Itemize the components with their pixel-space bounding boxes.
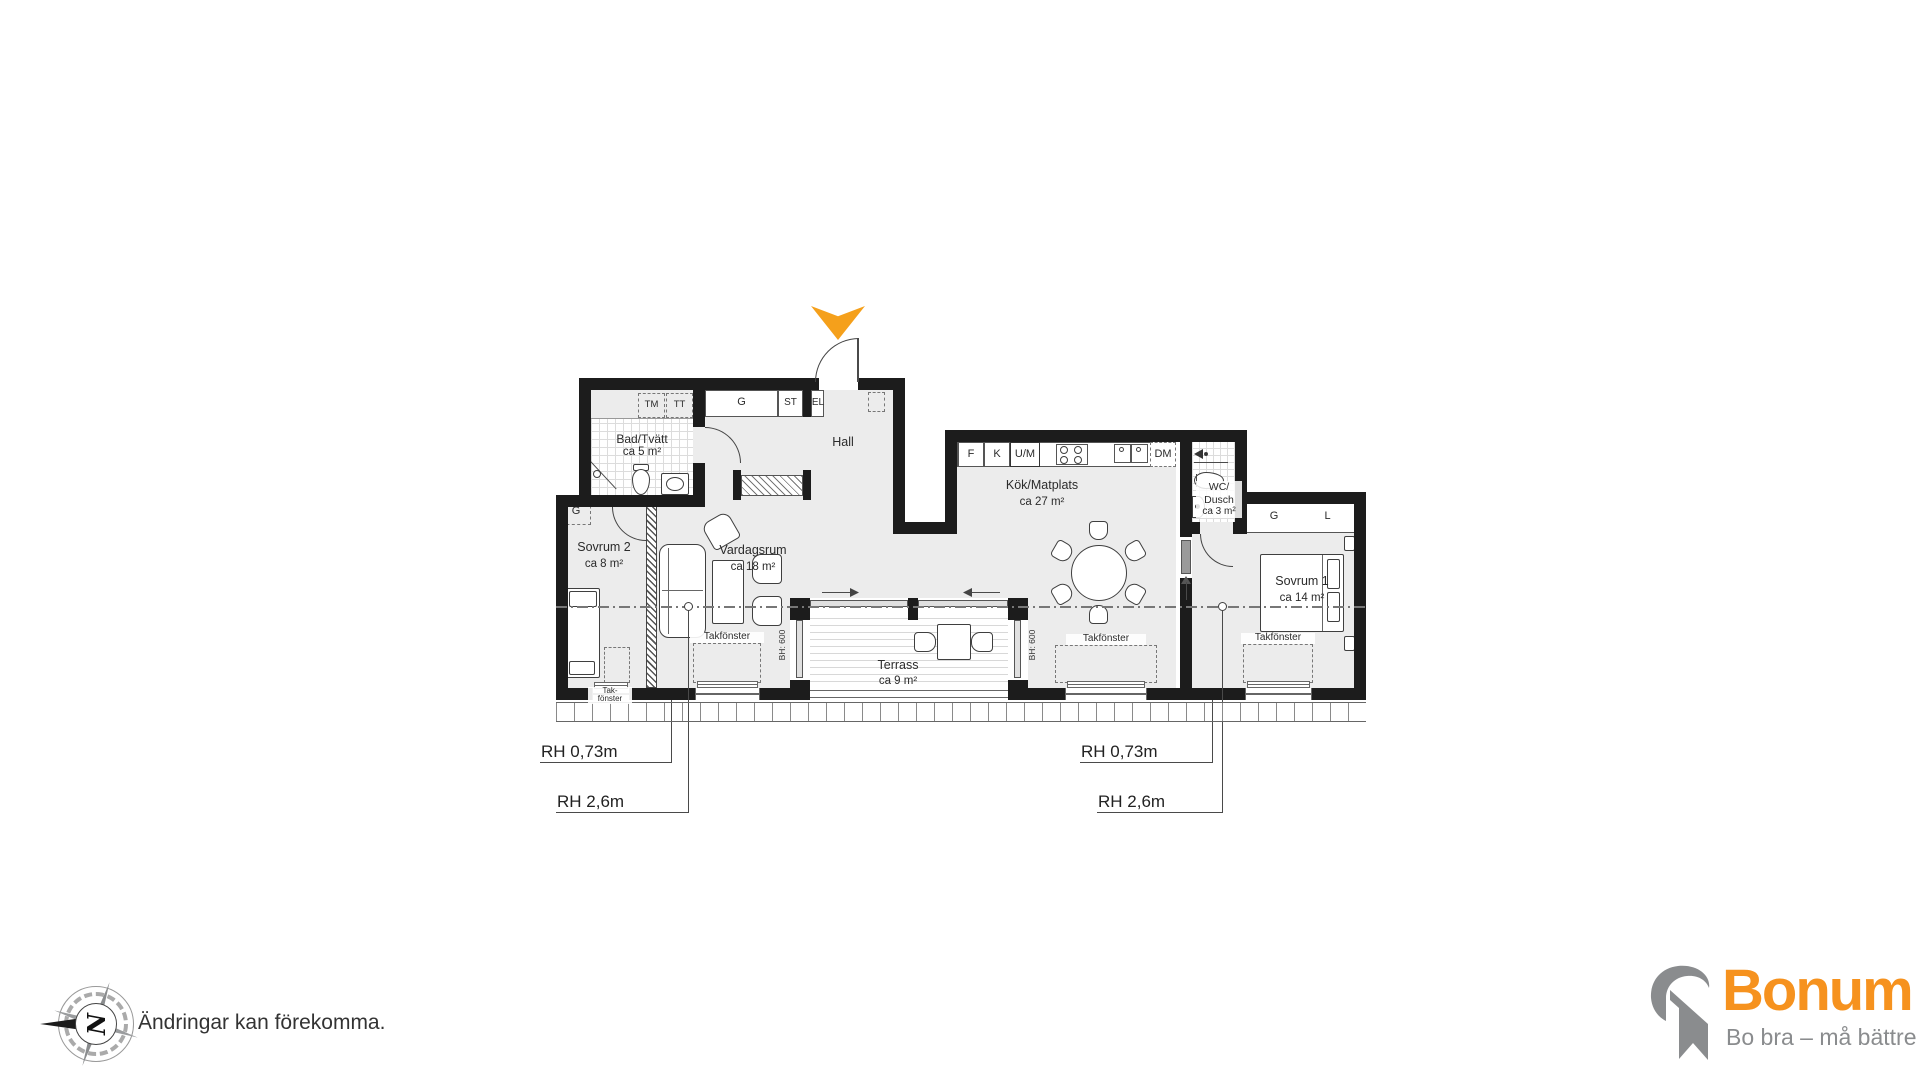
sill-vardagsrum	[697, 681, 758, 688]
sill-kok	[1067, 681, 1145, 688]
room-label-sovrum1: Sovrum 1 ca 14 m²	[1262, 574, 1342, 606]
wall-wc-bottom-right	[1233, 522, 1247, 534]
wall-bottom-1	[556, 688, 592, 700]
hall-dashed-unit	[868, 392, 885, 412]
skylight-kok	[1055, 645, 1157, 683]
oven-micro-label: U/M	[1010, 448, 1040, 461]
room-label-vardagsrum: Vardagsrum ca 18 m²	[712, 543, 794, 575]
fridge-label: F	[958, 448, 984, 461]
wall-left-upper	[579, 378, 591, 502]
skylight-vardagsrum	[693, 643, 761, 683]
wall-bottom-6	[1312, 688, 1366, 700]
sill-sovrum1	[1247, 681, 1310, 688]
terrass-pillar-bottom-left	[790, 680, 810, 700]
wall-top-left	[579, 378, 819, 390]
bed-sovrum2-blanket	[569, 661, 595, 675]
wall-kok-left	[945, 430, 957, 534]
room-area-kok: ca 27 m²	[996, 496, 1088, 510]
sofa	[659, 544, 706, 638]
closet-hall-st-label: ST	[778, 397, 803, 409]
dryer-tt-label: TT	[666, 399, 693, 410]
room-name-wc-line1: WC/	[1196, 481, 1242, 494]
leader-rh-low-right-h	[1080, 762, 1213, 763]
washer-tm-label: TM	[638, 399, 665, 410]
low-window-sovrum1	[1245, 688, 1312, 700]
burner-2	[1074, 446, 1082, 454]
room-name-terrass: Terrass	[866, 658, 930, 673]
section-node-right	[1218, 602, 1227, 611]
sink-tap-right	[1136, 447, 1141, 452]
room-area-terrass: ca 9 m²	[866, 675, 930, 689]
room-name-kok: Kök/Matplats	[996, 478, 1088, 493]
room-area-bad-tvatt: ca 5 m²	[604, 446, 680, 460]
dining-table	[1071, 545, 1127, 601]
dining-chair-n	[1089, 521, 1108, 540]
wardrobe-stub-left	[733, 470, 741, 500]
room-label-sovrum2: Sovrum 2 ca 8 m²	[566, 540, 642, 572]
partition-sovrum2-vardagsrum	[646, 495, 657, 688]
roof-edge-band	[556, 702, 1366, 722]
terrass-pillar-top-right	[1008, 598, 1028, 620]
room-label-kok: Kök/Matplats ca 27 m²	[996, 478, 1088, 510]
room-area-wc: ca 3 m²	[1196, 506, 1242, 518]
leader-rh-low-left-h	[540, 762, 672, 763]
bed-sovrum2-pillow	[569, 591, 597, 607]
section-line	[556, 606, 1366, 608]
terrass-mullion	[908, 598, 918, 620]
room-name-vardagsrum: Vardagsrum	[712, 543, 794, 558]
rh-high-left-label: RH 2,6m	[557, 792, 624, 812]
terrass-rail	[810, 690, 1008, 698]
compass: N	[48, 976, 144, 1072]
wall-wc-bottom-left	[1180, 522, 1200, 534]
room-area-sovrum2: ca 8 m²	[566, 558, 642, 572]
room-label-bad-tvatt: Bad/Tvätt ca 5 m²	[604, 432, 680, 460]
terrass-pillar-bottom-right	[1008, 680, 1028, 700]
wall-closet-stub	[803, 388, 811, 417]
sink-tap-left	[1119, 447, 1124, 452]
window-height-label-left: BH: 600	[777, 623, 787, 667]
room-label-wc-dusch: WC/ Dusch ca 3 m²	[1196, 481, 1242, 518]
room-area-sovrum1: ca 14 m²	[1262, 592, 1342, 606]
wall-right	[1354, 492, 1366, 700]
leader-rh-high-right-h	[1097, 812, 1223, 813]
window-height-label-right: BH: 600	[1027, 623, 1037, 667]
low-window-kok	[1065, 688, 1147, 700]
terrass-chair-right	[971, 632, 993, 652]
freezer-label: K	[984, 448, 1010, 461]
skylight-label-sovrum2-line2: fönster	[588, 695, 632, 703]
room-name-bad-tvatt: Bad/Tvätt	[604, 432, 680, 446]
section-node-left	[684, 602, 693, 611]
terrass-glazing-side-left	[796, 620, 803, 678]
skylight-label-vardagsrum: Takfönster	[690, 632, 764, 643]
wall-bottom-3	[760, 688, 790, 700]
washbasin-bad-bowl	[666, 477, 684, 491]
closet-hall-g-label: G	[705, 396, 778, 409]
room-label-hall: Hall	[818, 435, 868, 450]
entrance-arrow-icon	[811, 306, 865, 340]
wall-badtvatt-bottom	[591, 495, 705, 507]
dishwasher-label: DM	[1150, 448, 1176, 461]
wall-left-lower	[556, 495, 568, 700]
room-name-wc-line2: Dusch	[1196, 494, 1242, 507]
wall-hall-right	[893, 378, 905, 534]
wall-bottom-2	[630, 688, 695, 700]
closet-sovrum1-l-label: L	[1301, 510, 1354, 523]
skylight-label-sovrum2: Tak- fönster	[588, 687, 632, 704]
terrass-glazing-side-right	[1014, 620, 1021, 678]
burner-1	[1060, 446, 1068, 454]
entrance-door-leaf	[857, 338, 859, 382]
burner-3	[1060, 456, 1068, 464]
disclaimer-text: Ändringar kan förekomma.	[138, 1010, 498, 1035]
wall-badtvatt-right-upper	[693, 390, 705, 427]
burner-4	[1074, 456, 1082, 464]
sovrum1-entry-door-slab	[1181, 540, 1191, 574]
shower-symbol-dot	[1204, 452, 1208, 456]
skylight-sovrum1	[1243, 644, 1313, 683]
terrass-chair-left	[914, 632, 936, 652]
terrass-table	[937, 624, 971, 660]
brand-name: Bonum	[1722, 962, 1912, 1020]
wardrobe-stub-right	[803, 470, 811, 500]
leader-rh-high-left-h	[556, 812, 689, 813]
room-label-terrass: Terrass ca 9 m²	[866, 658, 930, 689]
dining-chair-s	[1089, 605, 1108, 624]
wall-sovrum1-top	[1241, 492, 1366, 504]
room-name-sovrum1: Sovrum 1	[1262, 574, 1342, 589]
terrass-pillar-top-left	[790, 598, 810, 620]
skylight-label-sovrum1: Takfönster	[1241, 633, 1315, 644]
rh-low-left-label: RH 0,73m	[541, 742, 618, 762]
low-window-vardagsrum	[695, 688, 760, 700]
brand-logo: Bonum Bo bra – må bättre	[1648, 962, 1918, 1072]
slide-arrow-left-line	[972, 592, 1000, 593]
entrance-door-arc	[815, 338, 859, 382]
rh-low-right-label: RH 0,73m	[1081, 742, 1158, 762]
armchair-3	[752, 596, 782, 626]
slide-arrow-right-line	[822, 592, 850, 593]
compass-north-letter: N	[75, 1003, 117, 1045]
floorplan-canvas: G TM TT F K U/M DM	[0, 0, 1920, 1080]
wall-bottom-4	[1028, 688, 1065, 700]
skylight-label-kok: Takfönster	[1066, 634, 1146, 645]
sovrum1-entry-arrow-line	[1186, 582, 1187, 600]
wc-shower-line	[1194, 462, 1228, 463]
brand-tagline: Bo bra – må bättre	[1726, 1024, 1917, 1051]
wall-kok-top	[945, 430, 1247, 442]
hall-wardrobe-rack	[741, 475, 803, 496]
sofa-back-line	[668, 548, 669, 634]
closet-sovrum1-g-label: G	[1247, 510, 1301, 523]
bonum-ribbon-icon	[1648, 964, 1716, 1064]
shower-drain	[593, 470, 601, 478]
wall-bottom-5	[1147, 688, 1245, 700]
sofa-split-line	[662, 590, 703, 591]
room-name-sovrum2: Sovrum 2	[566, 540, 642, 555]
skylight-sovrum2	[604, 647, 630, 683]
room-area-vardagsrum: ca 18 m²	[712, 561, 794, 575]
rh-high-right-label: RH 2,6m	[1098, 792, 1165, 812]
